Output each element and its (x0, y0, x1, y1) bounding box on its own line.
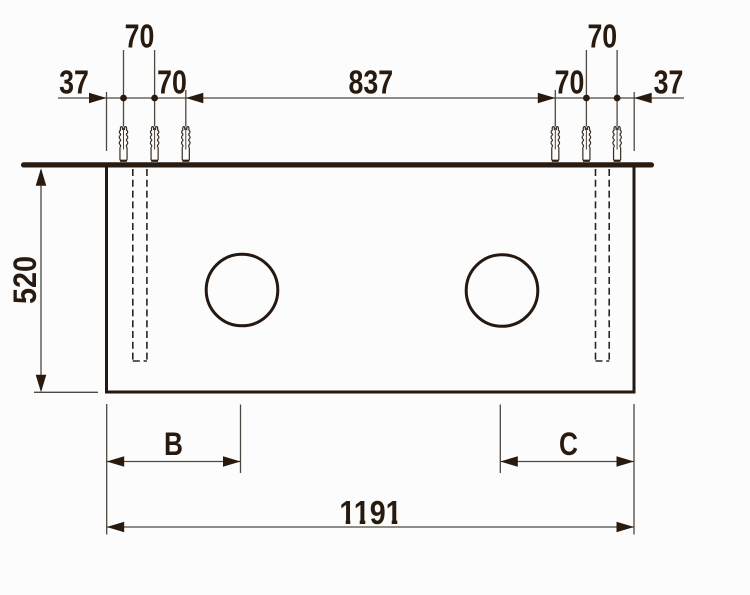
svg-text:70: 70 (555, 65, 585, 101)
svg-text:37: 37 (59, 65, 89, 101)
svg-text:520: 520 (8, 256, 44, 304)
svg-text:37: 37 (654, 65, 684, 101)
svg-text:1191: 1191 (339, 494, 401, 531)
svg-text:70: 70 (125, 19, 155, 55)
svg-text:B: B (164, 428, 183, 463)
svg-text:70: 70 (587, 19, 617, 55)
svg-text:C: C (559, 428, 578, 463)
svg-text:837: 837 (349, 65, 394, 101)
svg-text:70: 70 (157, 65, 187, 101)
